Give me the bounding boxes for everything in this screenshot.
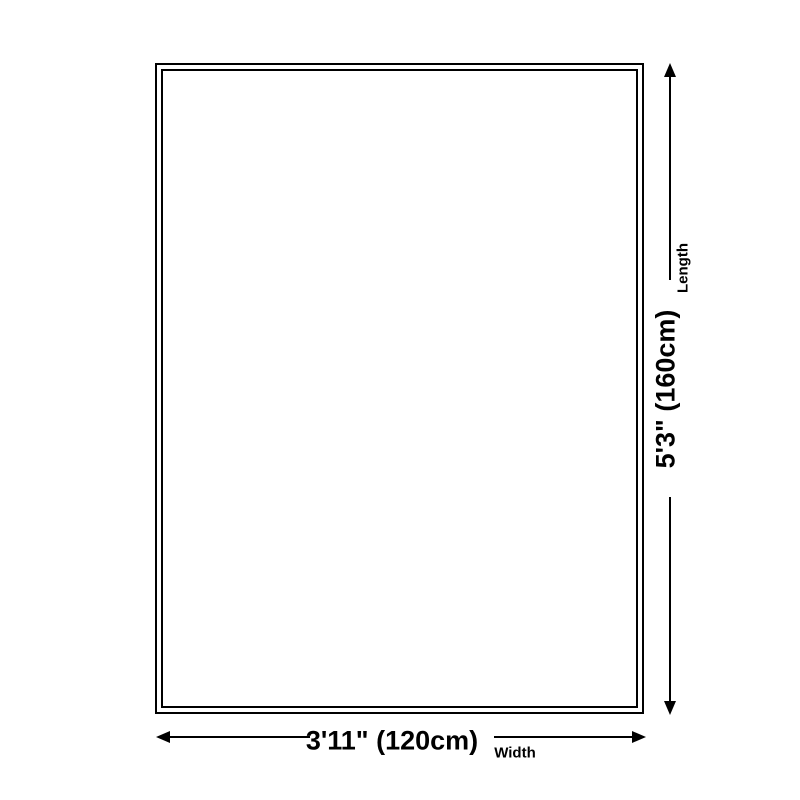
arrow-down-icon — [664, 701, 676, 715]
arrow-left-icon — [156, 731, 170, 743]
dimension-diagram: 5'3" (160cm) Length 3'11" (120cm) Width — [0, 0, 800, 800]
length-arrow-line-bottom — [669, 497, 671, 703]
width-arrow-line-right — [494, 736, 634, 738]
rug-outline-inner — [161, 69, 638, 708]
length-value: 5'3" (160cm) — [653, 310, 680, 469]
width-value: 3'11" (120cm) — [306, 728, 478, 755]
arrow-up-icon — [664, 63, 676, 77]
rug-outline — [155, 63, 644, 714]
arrow-right-icon — [632, 731, 646, 743]
width-arrow-line-left — [168, 736, 310, 738]
width-label: Width — [494, 746, 536, 761]
length-label: Length — [676, 243, 691, 293]
length-arrow-line-top — [669, 74, 671, 280]
